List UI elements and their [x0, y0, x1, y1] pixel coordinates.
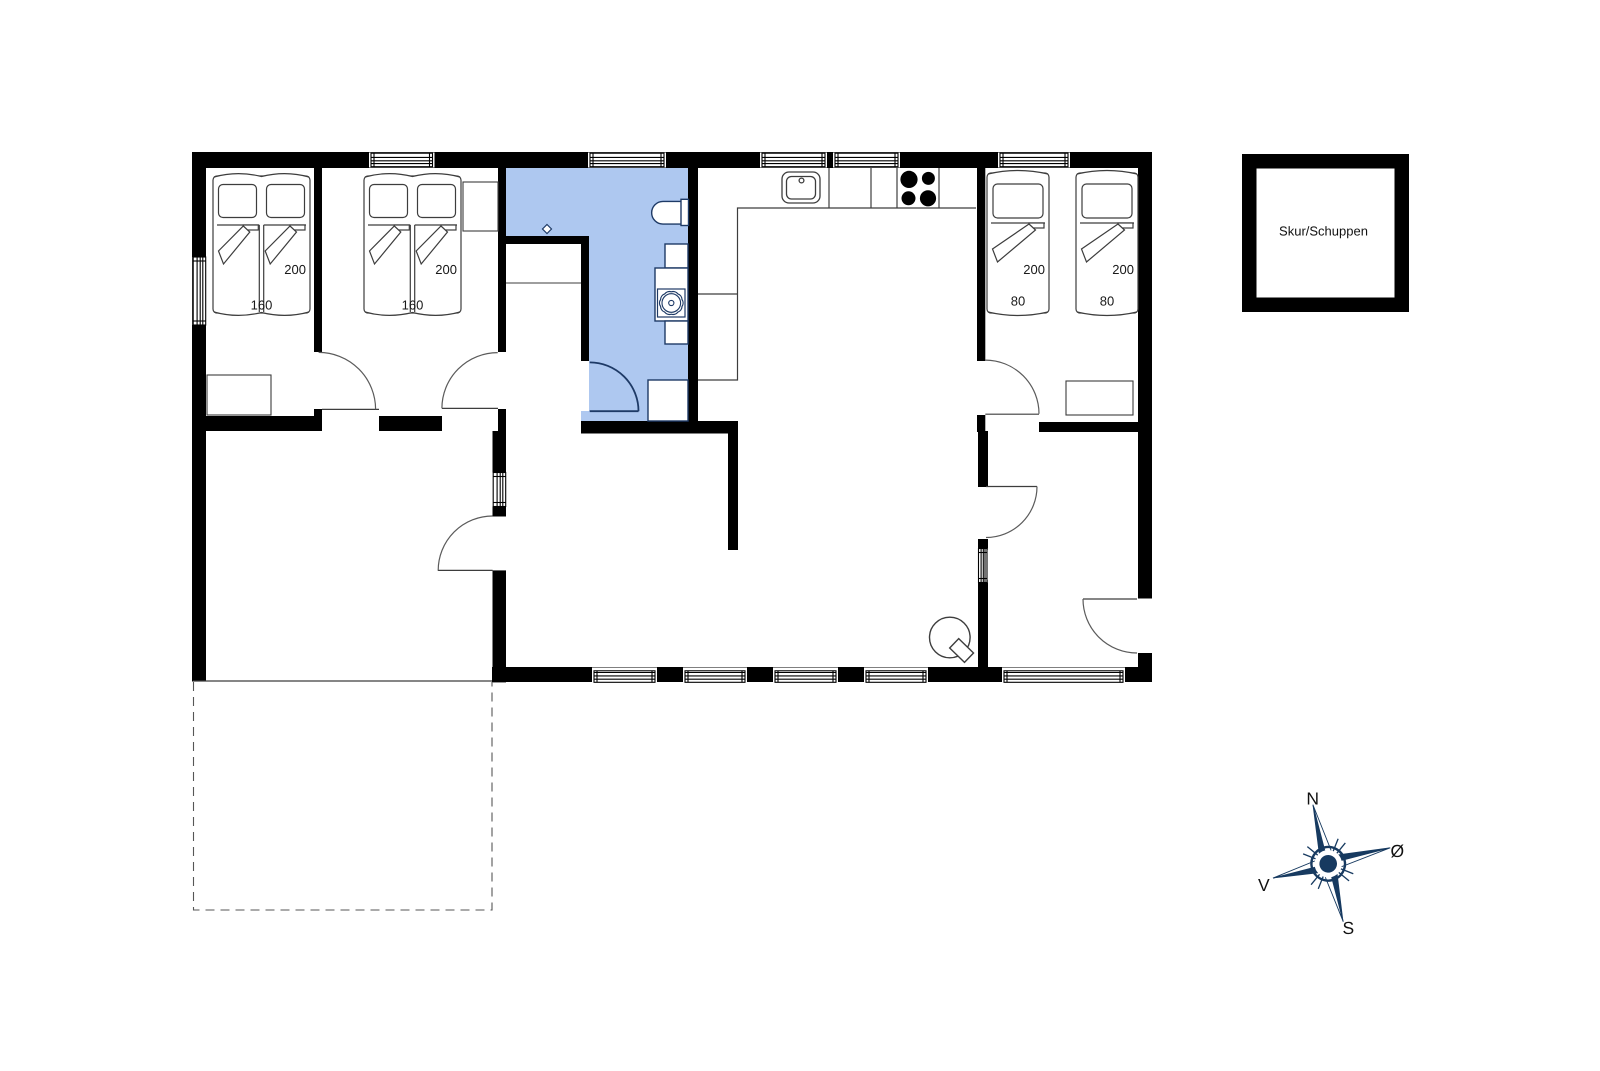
svg-text:Ø: Ø [1390, 841, 1404, 861]
svg-text:80: 80 [1011, 294, 1025, 309]
svg-text:S: S [1343, 918, 1355, 938]
svg-text:200: 200 [435, 262, 457, 277]
svg-text:Skur/Schuppen: Skur/Schuppen [1279, 224, 1368, 239]
svg-text:200: 200 [284, 262, 306, 277]
svg-text:200: 200 [1112, 262, 1134, 277]
svg-text:N: N [1306, 789, 1319, 809]
svg-text:200: 200 [1023, 262, 1045, 277]
svg-text:80: 80 [1100, 294, 1114, 309]
svg-text:160: 160 [402, 298, 424, 313]
svg-text:V: V [1258, 875, 1270, 895]
svg-text:160: 160 [251, 298, 273, 313]
